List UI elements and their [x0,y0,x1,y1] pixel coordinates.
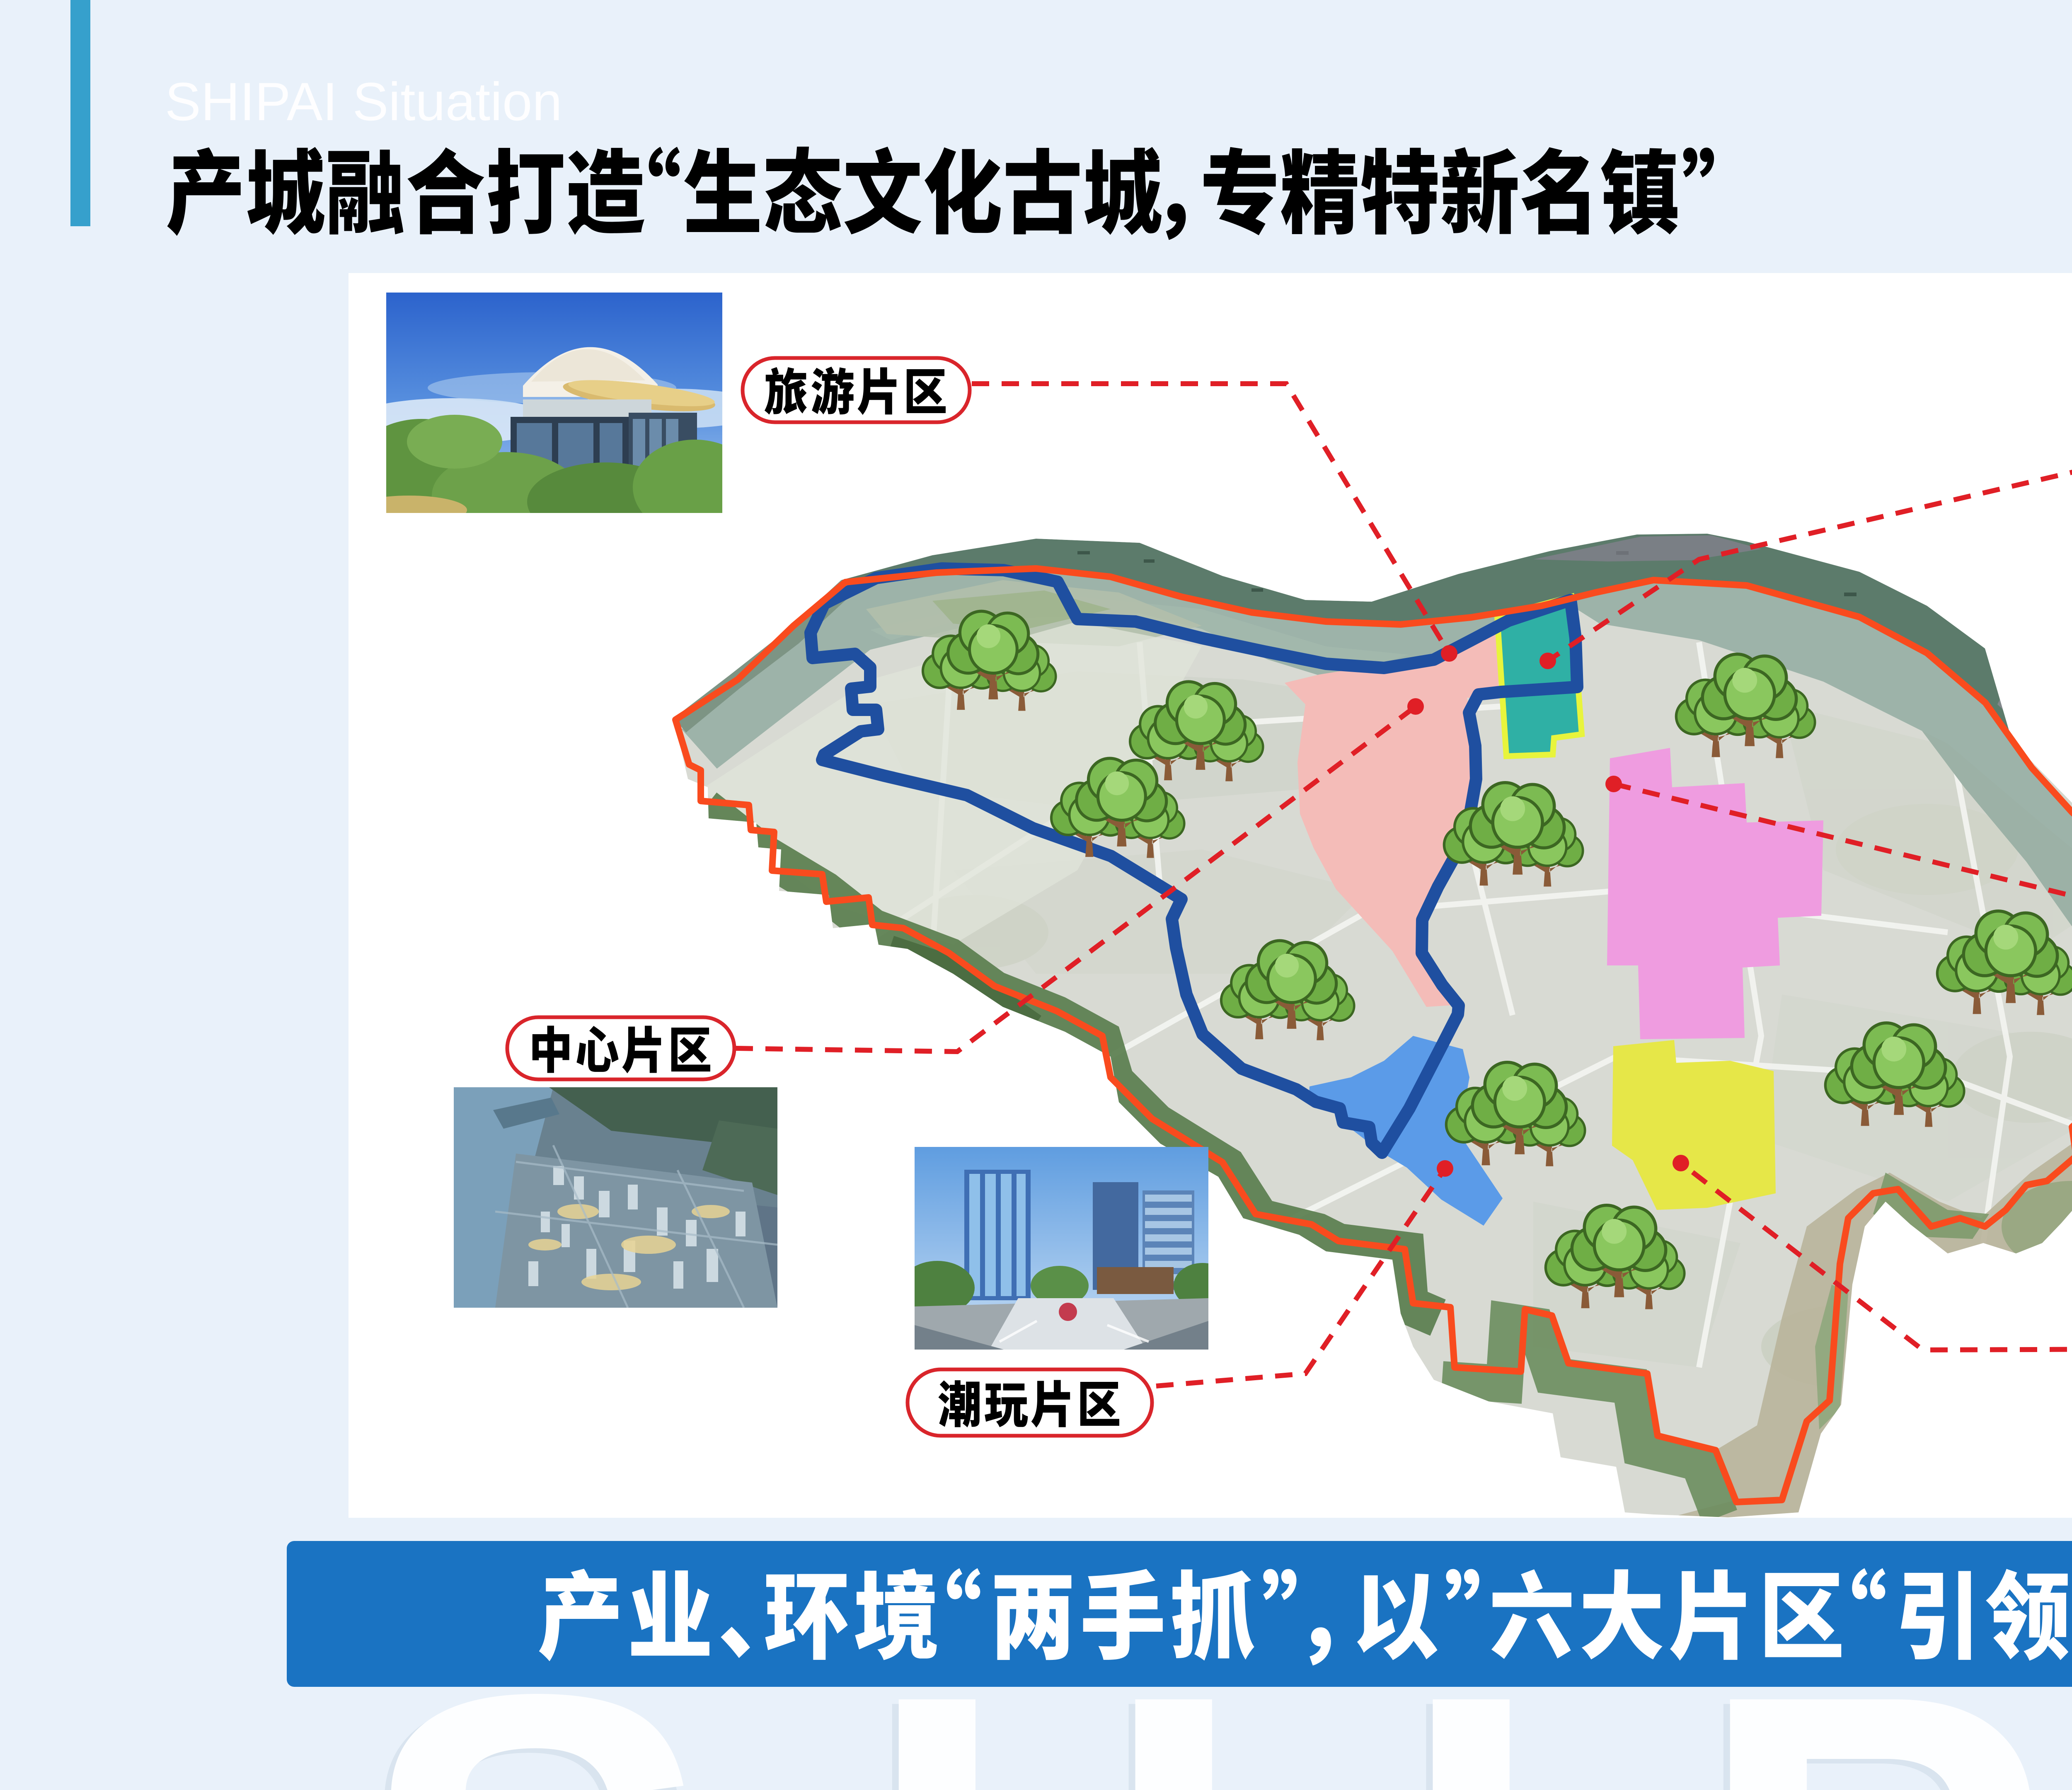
svg-text:SHIPAI Situation: SHIPAI Situation [165,71,562,132]
